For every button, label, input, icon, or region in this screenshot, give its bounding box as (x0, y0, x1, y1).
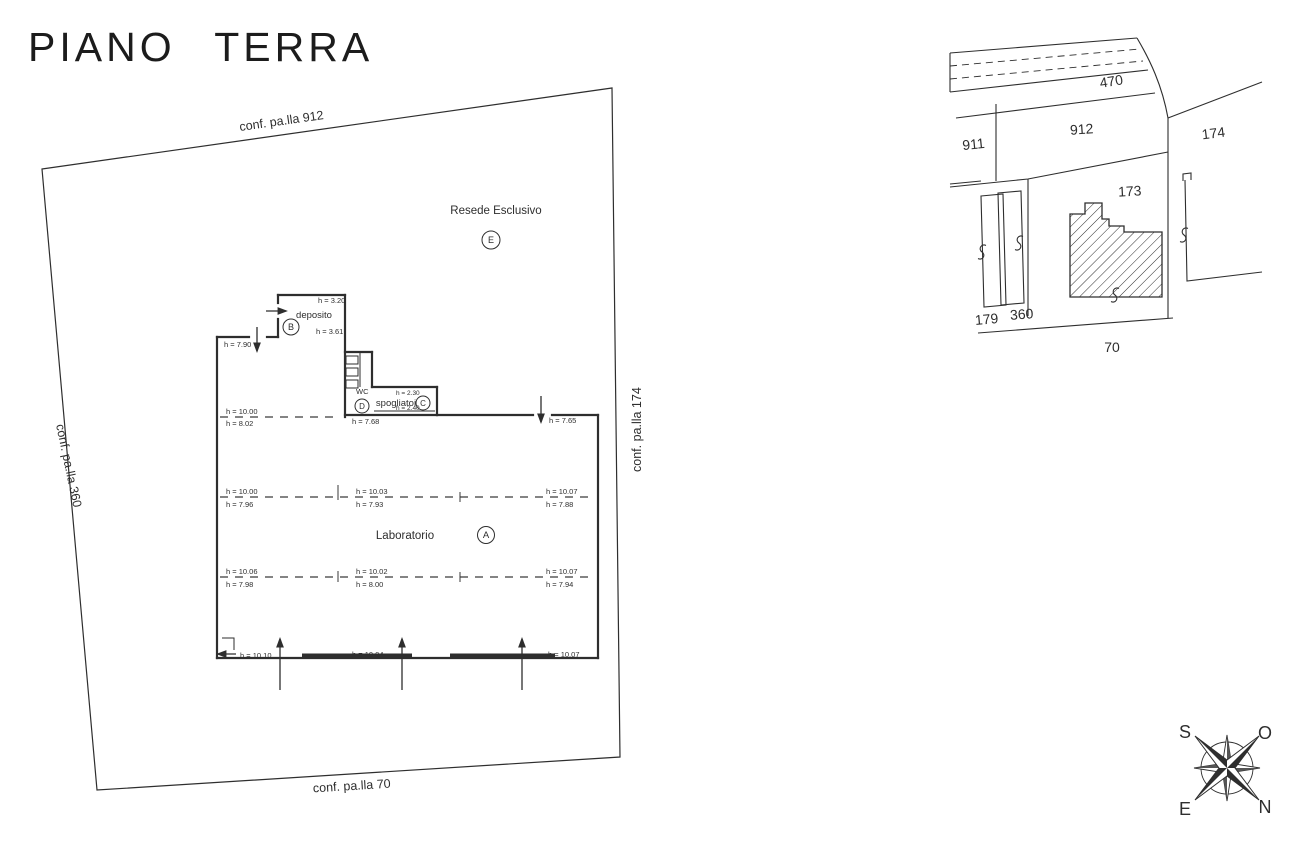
height-band3-mid-bottom: h = 8.00 (356, 580, 383, 589)
height-deposito-bottom: h = 3.61 (316, 327, 343, 336)
height-band3-left-top: h = 10.06 (226, 567, 258, 576)
svg-text:D: D (359, 402, 365, 411)
height-bottom-mid: h = 10.04 (352, 650, 384, 659)
parcel-label-174: 174 (1201, 124, 1226, 143)
room-label-laboratorio: Laboratorio (376, 530, 434, 542)
parcel-label-70: 70 (1104, 339, 1120, 355)
height-mid-left: h = 7.68 (352, 417, 379, 426)
height-band3-left-bottom: h = 7.98 (226, 580, 253, 589)
parcel-label-360: 360 (1009, 305, 1034, 323)
site-boundary (42, 88, 620, 790)
parcel-label-911: 911 (962, 135, 986, 153)
height-band1-left-top: h = 10.00 (226, 407, 258, 416)
height-spogliatoi-top: h = 2.30 (396, 390, 420, 397)
svg-text:B: B (288, 322, 294, 332)
drawing-sheet: PIANO TERRA conf. pa.lla 912 conf. pa.ll… (0, 0, 1290, 847)
parcel-label-173: 173 (1118, 182, 1142, 199)
height-right-entry: h = 7.65 (549, 416, 576, 425)
height-deposito-top: h = 3.20 (318, 296, 345, 305)
parcel-label-179: 179 (974, 310, 999, 328)
room-tag-wc: D (355, 399, 369, 413)
parcel-label-470: 470 (1098, 71, 1124, 90)
hatched-building (1070, 203, 1162, 297)
boundary-label-70: conf. pa.lla 70 (312, 777, 391, 796)
wall-thick-segments (302, 654, 555, 658)
svg-text:C: C (420, 399, 426, 408)
height-spogliatoi-bottom: h = 2.40 (396, 405, 420, 412)
compass-rose: S O E N (1179, 722, 1272, 819)
room-tag-deposito: B (283, 319, 299, 335)
compass-label-e: E (1179, 799, 1191, 819)
height-band3-right-top: h = 10.07 (546, 567, 578, 576)
compass-label-n: N (1259, 797, 1272, 817)
area-label-resede: Resede Esclusivo (450, 205, 541, 217)
height-bottom-left: h = 10.10 (240, 651, 272, 660)
section-dashed-lines (220, 417, 593, 577)
height-band1-left-bottom: h = 8.02 (226, 419, 253, 428)
height-band2-right-top: h = 10.07 (546, 487, 578, 496)
area-tag-resede: E (482, 231, 500, 249)
room-label-deposito: deposito (296, 310, 332, 321)
boundary-label-912: conf. pa.lla 912 (238, 108, 324, 134)
height-band2-mid-top: h = 10.03 (356, 487, 388, 496)
height-band2-right-bottom: h = 7.88 (546, 500, 573, 509)
height-band3-right-bottom: h = 7.94 (546, 580, 573, 589)
svg-text:E: E (488, 235, 494, 245)
height-band2-left-top: h = 10.00 (226, 487, 258, 496)
boundary-label-360: conf. pa.lla 360 (53, 423, 84, 509)
parcel-label-912: 912 (1069, 120, 1094, 138)
compass-label-o: O (1258, 723, 1272, 743)
height-band3-mid-top: h = 10.02 (356, 567, 388, 576)
height-band2-left-bottom: h = 7.96 (226, 500, 253, 509)
svg-text:A: A (483, 530, 490, 541)
building-walls (217, 295, 598, 658)
height-annotations: h = 7.90 h = 3.20 h = 3.61 h = 2.30 h = … (224, 296, 580, 660)
height-band2-mid-bottom: h = 7.93 (356, 500, 383, 509)
room-tag-laboratorio: A (478, 527, 495, 544)
boundary-label-174: conf. pa.lla 174 (630, 387, 644, 472)
height-left-wall: h = 7.90 (224, 340, 251, 349)
compass-label-s: S (1179, 722, 1191, 742)
cadastral-map: 470 911 912 174 173 179 360 70 (950, 38, 1262, 355)
room-label-wc: WC (356, 387, 369, 396)
floor-plan-drawing: conf. pa.lla 912 conf. pa.lla 360 conf. … (0, 0, 1290, 847)
height-bottom-right: h = 10.07 (548, 650, 580, 659)
